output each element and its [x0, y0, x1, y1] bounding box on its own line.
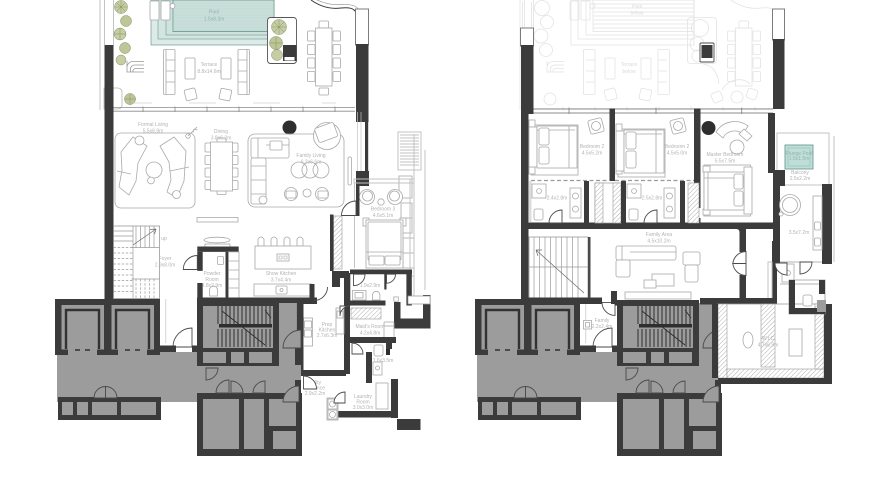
svg-text:3.5x7.2m: 3.5x7.2m	[789, 230, 810, 236]
svg-text:3.0x3.0m: 3.0x3.0m	[353, 405, 374, 411]
svg-text:6.2x6.6m: 6.2x6.6m	[301, 160, 322, 166]
svg-text:2.5x2.8m: 2.5x2.8m	[642, 196, 663, 202]
svg-text:5.5x6.9m: 5.5x6.9m	[143, 129, 164, 135]
svg-text:Bedroom 3: Bedroom 3	[371, 207, 396, 213]
svg-text:Show Kitchen: Show Kitchen	[266, 271, 297, 277]
svg-text:1.6x3.5m: 1.6x3.5m	[373, 358, 394, 364]
svg-text:1.9x2.9m: 1.9x2.9m	[360, 283, 381, 289]
svg-text:8.8x14.6m: 8.8x14.6m	[197, 69, 220, 75]
svg-text:2.9x8.0m: 2.9x8.0m	[155, 263, 176, 269]
svg-text:2.2x2.4m: 2.2x2.4m	[592, 324, 613, 330]
svg-text:Maid's Room: Maid's Room	[355, 324, 384, 330]
svg-text:2.5x2.2m: 2.5x2.2m	[790, 176, 811, 182]
svg-text:below: below	[622, 69, 635, 75]
svg-text:Bedroom 2: Bedroom 2	[580, 144, 605, 150]
svg-text:1.5x8.3m: 1.5x8.3m	[204, 17, 225, 23]
svg-text:2.4x2.8m: 2.4x2.8m	[547, 196, 568, 202]
svg-text:up: up	[161, 236, 167, 242]
svg-text:below: below	[630, 11, 643, 17]
svg-text:Formal Living: Formal Living	[138, 122, 168, 128]
svg-text:4.5x10.2m: 4.5x10.2m	[647, 239, 670, 245]
svg-text:2.7x6.3m: 2.7x6.3m	[317, 333, 338, 339]
svg-text:Family Area: Family Area	[646, 232, 673, 238]
svg-text:Dining: Dining	[214, 129, 228, 135]
svg-text:3.7x4.4m: 3.7x4.4m	[271, 278, 292, 284]
svg-text:Pool: Pool	[632, 4, 642, 10]
svg-text:1.5x1.5m: 1.5x1.5m	[789, 156, 810, 162]
svg-text:5.5x7.5m: 5.5x7.5m	[715, 159, 736, 165]
svg-text:4.5x5.0m: 4.5x5.0m	[667, 151, 688, 157]
svg-text:4.7x6.9m: 4.7x6.9m	[758, 343, 779, 349]
svg-text:Family Living: Family Living	[296, 153, 325, 159]
svg-text:4.5x5.2m: 4.5x5.2m	[582, 151, 603, 157]
svg-text:2.9x2.2m: 2.9x2.2m	[305, 391, 326, 397]
svg-text:4.6x5.1m: 4.6x5.1m	[373, 213, 394, 219]
svg-text:Bedroom 2: Bedroom 2	[665, 144, 690, 150]
svg-text:Terrace: Terrace	[201, 62, 218, 68]
svg-text:Pool: Pool	[209, 10, 219, 16]
svg-text:Terrace: Terrace	[621, 62, 638, 68]
svg-text:W.I.C: W.I.C	[762, 336, 775, 342]
svg-text:4.2x4.8m: 4.2x4.8m	[360, 331, 381, 337]
svg-text:Foyer: Foyer	[159, 256, 172, 262]
svg-text:Master Bedroom: Master Bedroom	[707, 152, 744, 158]
svg-text:3.8x6.2m: 3.8x6.2m	[211, 136, 232, 142]
svg-text:1.8x2.9m: 1.8x2.9m	[202, 283, 223, 289]
